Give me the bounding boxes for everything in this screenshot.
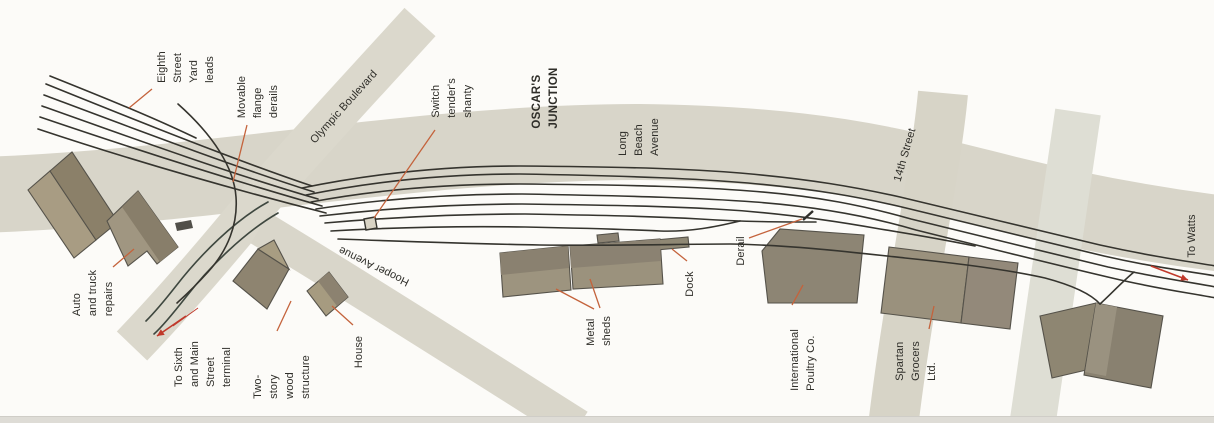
leader-metal-sheds-1 (556, 289, 594, 309)
track-map-svg (0, 0, 1214, 423)
track-yard-track-6 (325, 214, 816, 223)
page-edge-strip (0, 416, 1214, 423)
building-spartan-grocers-left (881, 247, 969, 323)
building-international-poultry-building (762, 229, 864, 303)
track-yard-lead-0 (50, 76, 196, 138)
leader-eighth-street (129, 89, 152, 108)
leader-two-story (277, 301, 291, 331)
mark-parked-car (175, 220, 193, 231)
leader-house (332, 306, 353, 325)
track-yard-track-7 (331, 221, 740, 231)
mark-switch-tenders-shanty (364, 217, 377, 230)
leader-dock (672, 249, 687, 261)
building-metal-shed-bump (597, 233, 619, 243)
track-map-stage: Eighth Street Yard leadsMovable flange d… (0, 0, 1214, 423)
